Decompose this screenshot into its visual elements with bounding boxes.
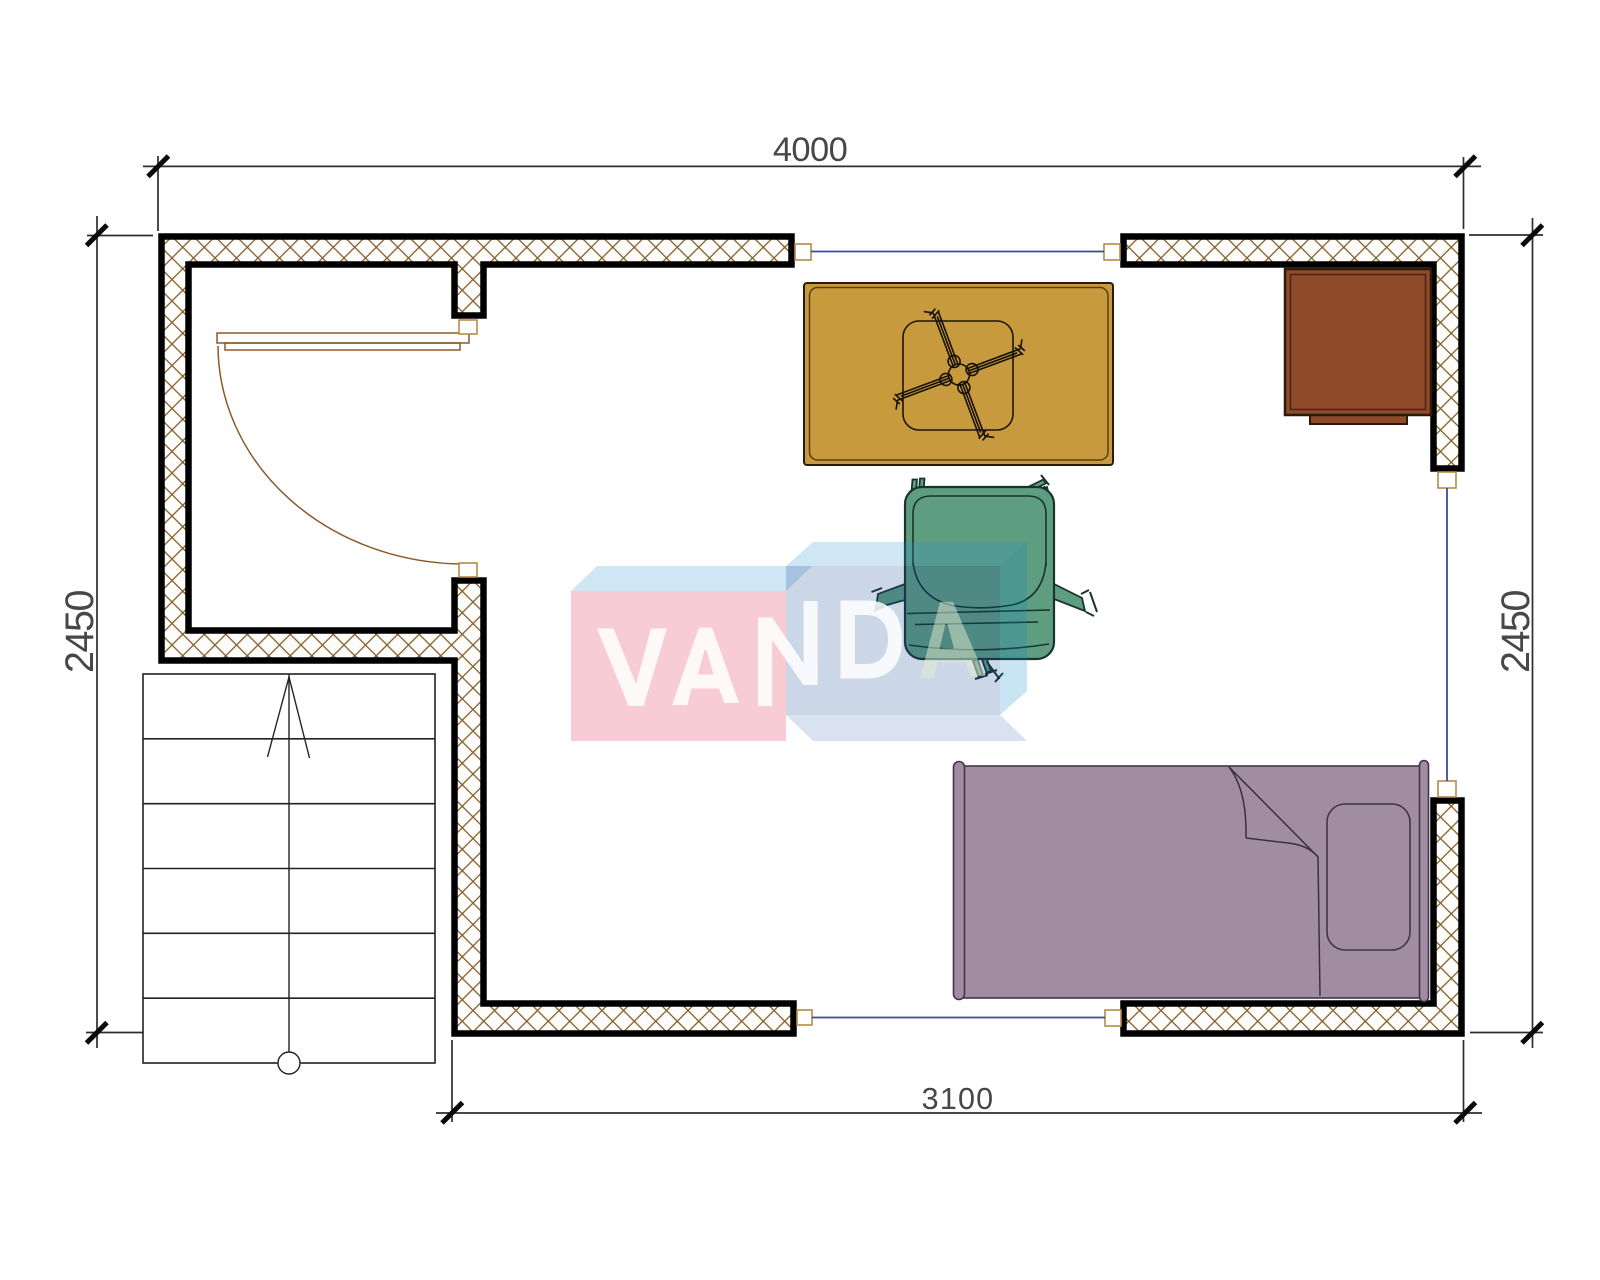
svg-text:2450: 2450 bbox=[58, 591, 102, 673]
svg-text:4000: 4000 bbox=[773, 131, 847, 169]
svg-text:3100: 3100 bbox=[922, 1082, 995, 1116]
svg-text:2450: 2450 bbox=[1494, 591, 1538, 673]
